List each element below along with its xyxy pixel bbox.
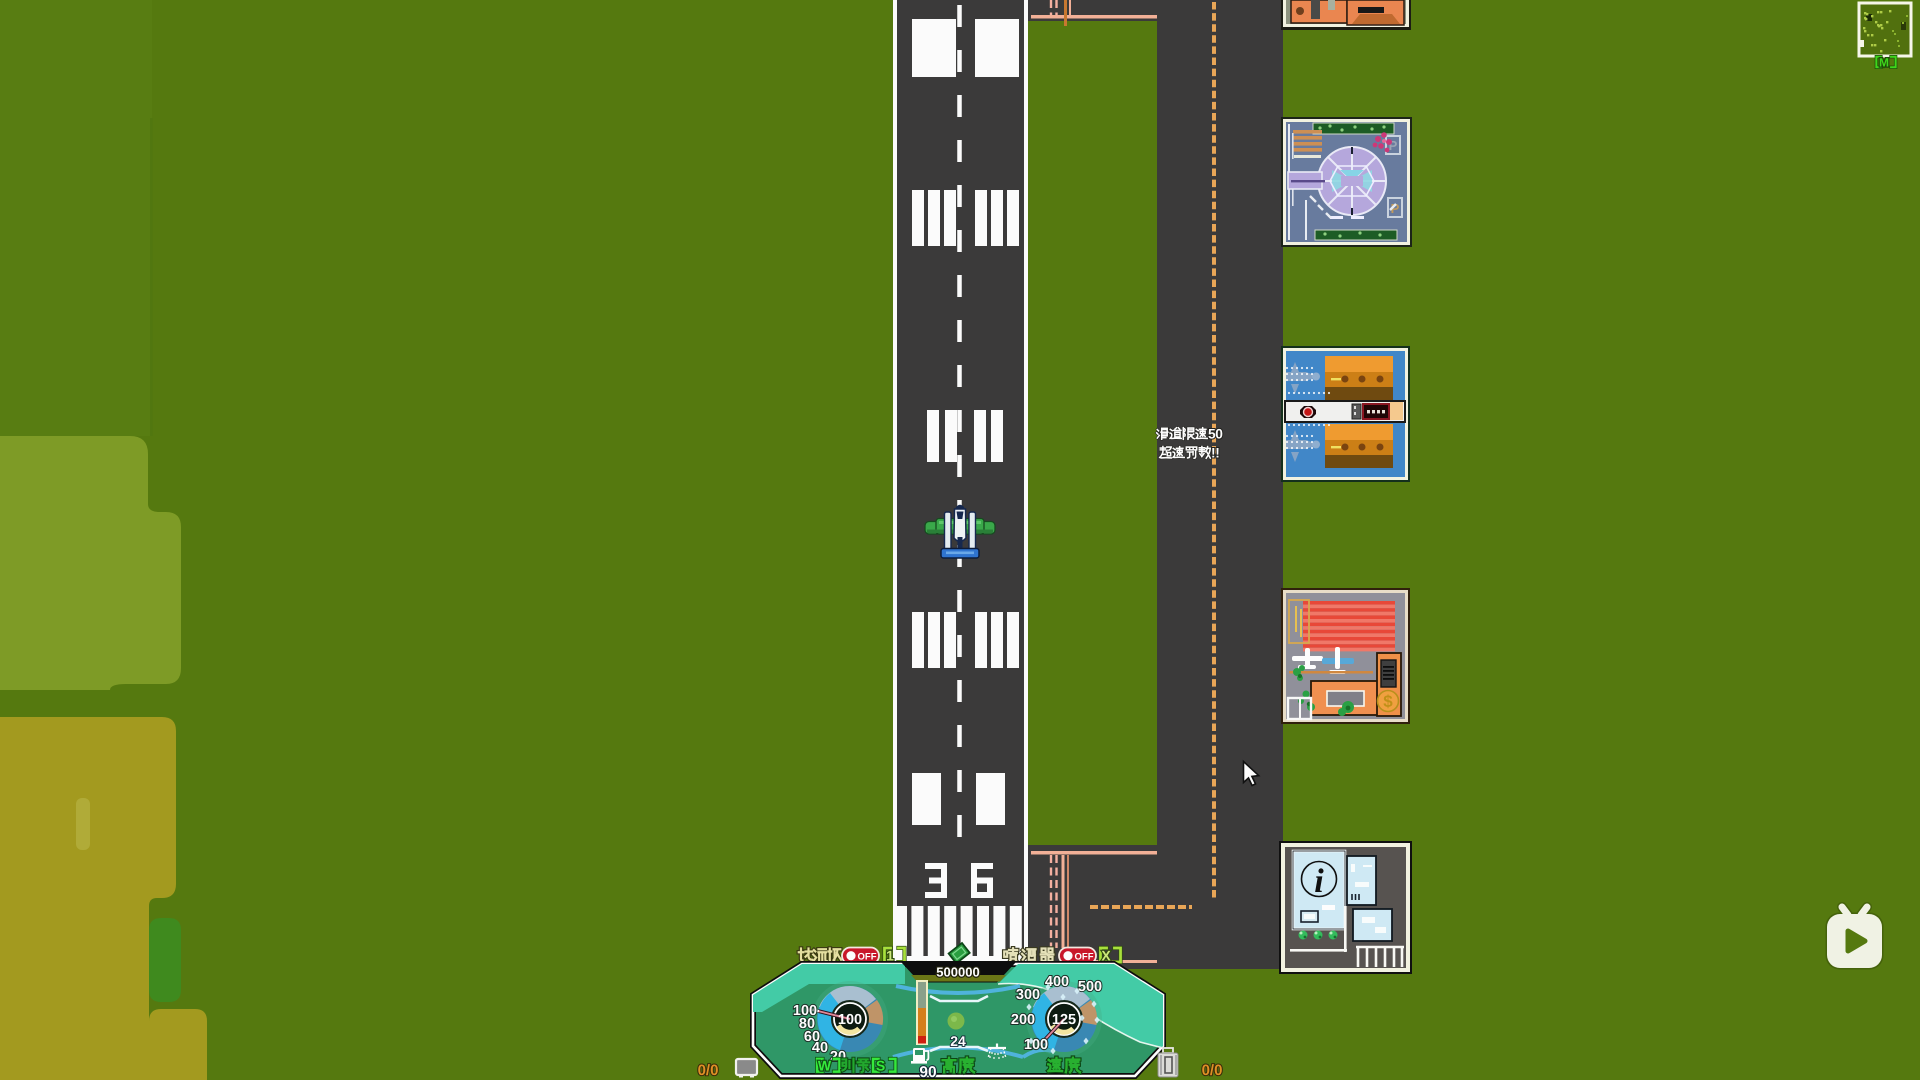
svg-text:0/0: 0/0 [1202,1062,1223,1079]
svg-text:24: 24 [950,1033,966,1049]
svg-text:S: S [876,1058,885,1074]
svg-text:W: W [818,1058,832,1074]
svg-text:500: 500 [1078,979,1102,995]
svg-text:0/0: 0/0 [698,1062,719,1079]
svg-text:OFF: OFF [1075,952,1094,963]
svg-text:i: i [1314,863,1324,900]
svg-text:50: 50 [1208,427,1223,443]
svg-text:100: 100 [838,1012,862,1028]
svg-text:OFF: OFF [858,952,877,963]
svg-text:125: 125 [1052,1012,1076,1028]
svg-text:500000: 500000 [936,965,979,980]
svg-text:100: 100 [1024,1037,1048,1053]
svg-text:200: 200 [1011,1012,1035,1028]
svg-text:!!: !! [1211,446,1219,462]
svg-text:300: 300 [1016,987,1040,1003]
svg-text:90: 90 [919,1064,936,1080]
svg-text:$: $ [1383,692,1393,711]
svg-text:40: 40 [812,1040,828,1056]
svg-text:M: M [1879,56,1889,70]
